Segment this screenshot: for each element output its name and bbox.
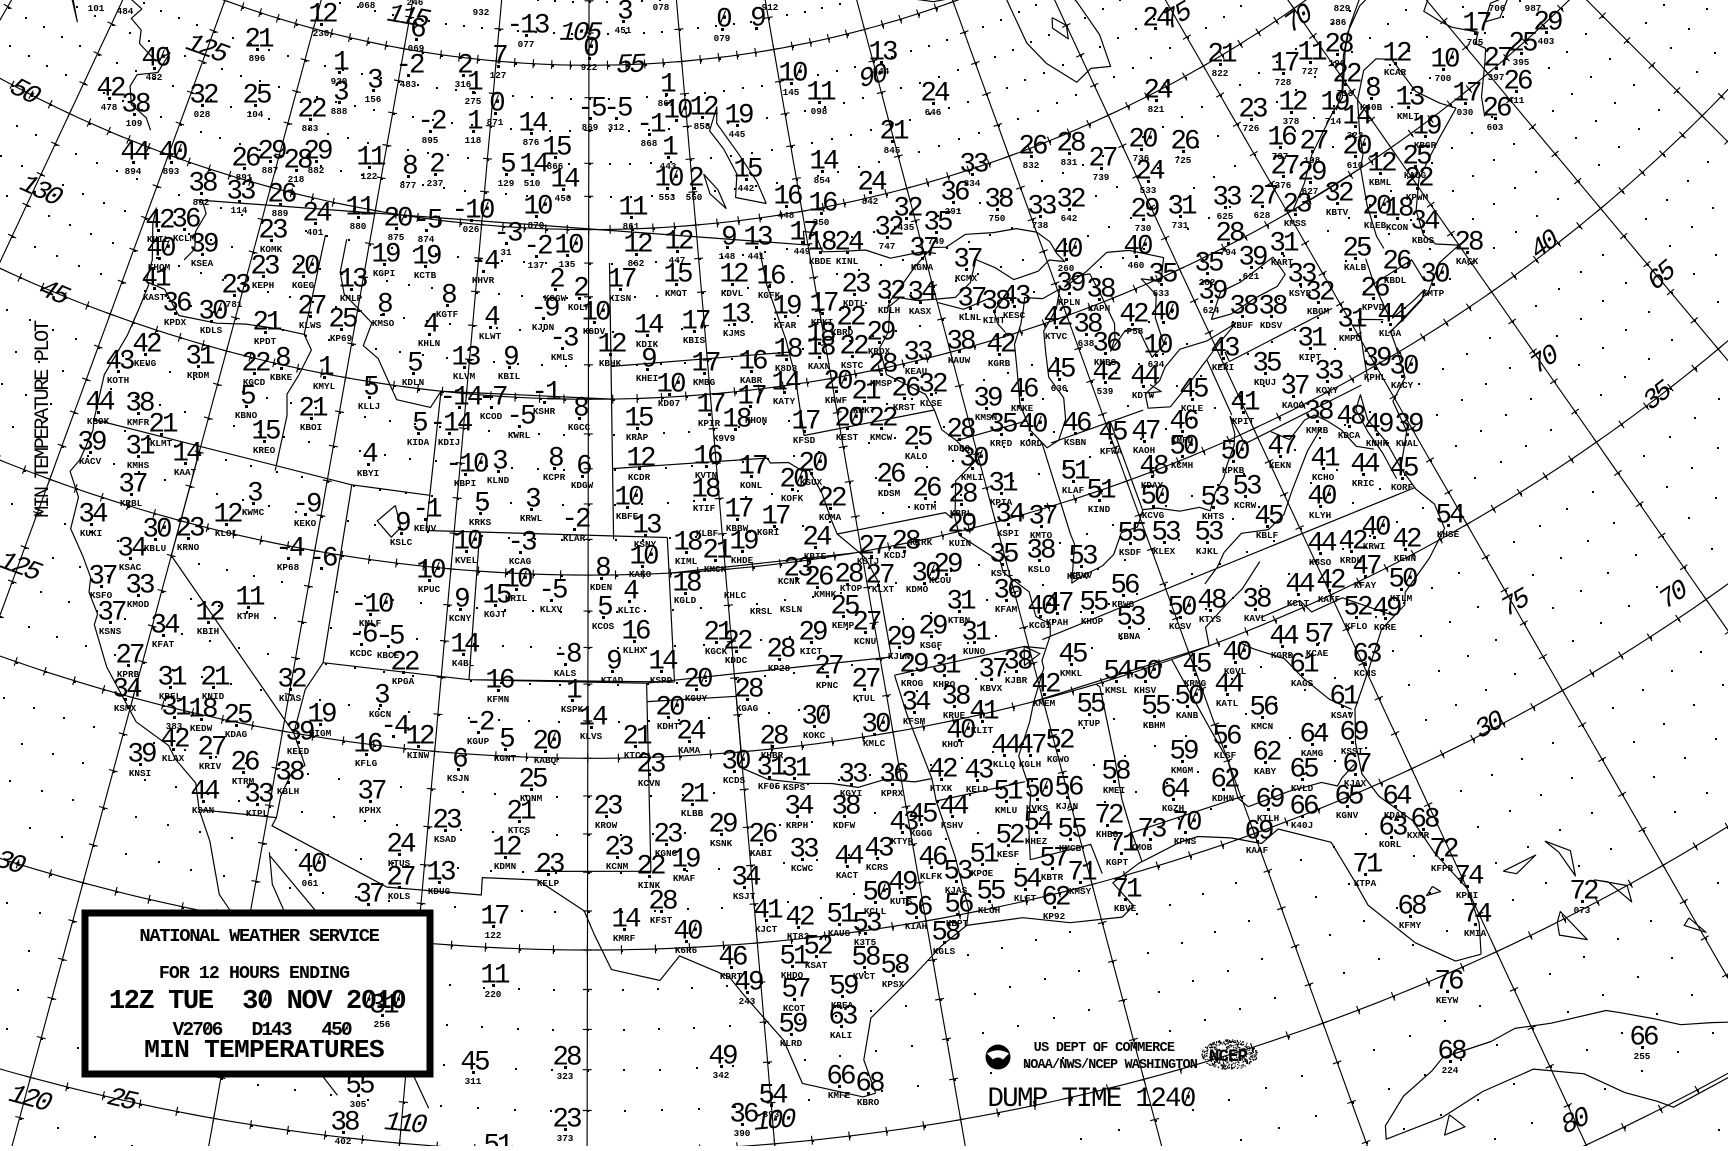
svg-text:1: 1 <box>318 353 334 384</box>
svg-text:KMSO: KMSO <box>372 318 395 329</box>
svg-text:KAST: KAST <box>143 292 166 303</box>
svg-text:383: 383 <box>166 721 183 732</box>
svg-text:34: 34 <box>901 688 931 719</box>
svg-text:KCDS: KCDS <box>723 775 746 786</box>
svg-text:KAPN: KAPN <box>1088 303 1110 314</box>
svg-text:109: 109 <box>126 118 143 129</box>
svg-text:KONM: KONM <box>520 793 543 804</box>
svg-text:KMFR: KMFR <box>127 417 150 428</box>
svg-text:KPGA: KPGA <box>392 676 415 687</box>
svg-text:KMEI: KMEI <box>1103 785 1125 796</box>
svg-text:KJKL: KJKL <box>1196 546 1219 557</box>
svg-text:KINW: KINW <box>407 750 430 761</box>
svg-text:390: 390 <box>734 1128 751 1139</box>
svg-text:610: 610 <box>1347 160 1364 171</box>
svg-text:KSPI: KSPI <box>997 528 1019 539</box>
svg-text:34: 34 <box>907 278 937 309</box>
svg-text:KLAX: KLAX <box>162 753 185 764</box>
svg-text:KPIT: KPIT <box>1232 416 1255 427</box>
svg-text:KJCT: KJCT <box>755 924 778 935</box>
svg-text:912: 912 <box>762 2 779 13</box>
svg-text:736: 736 <box>1133 153 1150 164</box>
svg-text:KROX: KROX <box>868 346 891 357</box>
svg-text:KMAF: KMAF <box>673 873 696 884</box>
svg-text:KVKS: KVKS <box>1026 803 1049 814</box>
svg-text:21: 21 <box>879 117 909 148</box>
svg-text:KDLS: KDLS <box>200 325 223 336</box>
svg-text:KMCK: KMCK <box>704 564 727 575</box>
svg-text:KCVN: KCVN <box>638 778 660 789</box>
svg-text:51: 51 <box>483 1131 513 1147</box>
svg-text:34: 34 <box>731 863 761 894</box>
svg-text:61: 61 <box>1329 682 1359 713</box>
svg-text:KGCD: KGCD <box>243 377 266 388</box>
svg-text:KLEX: KLEX <box>1153 546 1176 557</box>
svg-text:KMEM: KMEM <box>1033 698 1056 709</box>
svg-text:822: 822 <box>1212 68 1229 79</box>
svg-text:078: 078 <box>653 2 670 13</box>
svg-text:KMCB: KMCB <box>1059 843 1082 854</box>
svg-text:KLRD: KLRD <box>780 1038 803 1049</box>
svg-text:KRST: KRST <box>893 402 916 413</box>
svg-text:KRSL: KRSL <box>750 606 773 617</box>
svg-text:34: 34 <box>117 534 147 565</box>
svg-text:077: 077 <box>518 39 535 50</box>
svg-text:KD07: KD07 <box>658 398 680 409</box>
svg-text:21: 21 <box>1207 40 1237 71</box>
svg-text:KLAS: KLAS <box>279 693 302 704</box>
svg-text:275: 275 <box>465 96 482 107</box>
svg-text:882: 882 <box>308 165 325 176</box>
svg-text:028: 028 <box>194 109 211 120</box>
svg-text:KROW: KROW <box>595 820 618 831</box>
svg-text:KBTV: KBTV <box>1326 207 1349 218</box>
svg-text:KSFO: KSFO <box>90 590 113 601</box>
svg-text:098: 098 <box>811 106 828 117</box>
svg-text:KREO: KREO <box>253 445 276 456</box>
svg-text:KENV: KENV <box>414 523 437 534</box>
svg-text:14: 14 <box>648 647 678 678</box>
svg-text:KBRL: KBRL <box>950 508 973 519</box>
svg-text:KBCE: KBCE <box>377 650 400 661</box>
svg-text:114: 114 <box>231 205 248 216</box>
svg-text:KOLS: KOLS <box>388 891 411 902</box>
svg-text:KAMG: KAMG <box>1301 748 1324 759</box>
svg-text:KAUG: KAUG <box>1404 170 1427 181</box>
svg-text:KMGM: KMGM <box>1171 765 1194 776</box>
svg-text:KLLQ: KLLQ <box>993 759 1016 770</box>
svg-text:KGPI: KGPI <box>373 268 395 279</box>
svg-text:323: 323 <box>557 1071 574 1082</box>
svg-text:KEMP: KEMP <box>832 620 855 631</box>
svg-text:KLFK: KLFK <box>920 871 943 882</box>
svg-text:KLLJ: KLLJ <box>358 401 380 412</box>
svg-text:311: 311 <box>465 1076 482 1087</box>
svg-text:KTCS: KTCS <box>508 825 531 836</box>
svg-text:KRMG: KRMG <box>1184 678 1207 689</box>
svg-text:KGRB: KGRB <box>988 358 1011 369</box>
svg-text:21: 21 <box>298 394 328 425</box>
svg-text:KFSM: KFSM <box>903 716 926 727</box>
svg-text:KPLN: KPLN <box>1058 297 1080 308</box>
svg-text:KDMO: KDMO <box>906 584 929 595</box>
svg-text:KNSI: KNSI <box>129 768 151 779</box>
svg-text:447: 447 <box>669 255 686 266</box>
svg-text:KPAH: KPAH <box>1046 617 1068 628</box>
svg-text:44: 44 <box>120 138 150 169</box>
svg-text:KRIC: KRIC <box>1352 478 1375 489</box>
svg-text:KGSO: KGSO <box>1309 557 1332 568</box>
svg-text:KLIT: KLIT <box>971 725 994 736</box>
svg-text:KCOU: KCOU <box>929 575 951 586</box>
svg-text:K4BL: K4BL <box>452 658 475 669</box>
svg-text:4: 4 <box>362 440 378 471</box>
svg-text:KEDW: KEDW <box>190 723 213 734</box>
svg-text:603: 603 <box>1487 122 1504 133</box>
svg-text:11: 11 <box>356 143 386 174</box>
svg-text:KRFD: KRFD <box>990 438 1013 449</box>
svg-text:KFAM: KFAM <box>995 604 1018 615</box>
svg-text:483: 483 <box>400 79 417 90</box>
svg-text:KDBQ: KDBQ <box>948 443 971 454</box>
svg-text:34: 34 <box>784 792 814 823</box>
svg-text:KCVG: KCVG <box>1142 510 1165 521</box>
svg-text:KBPT: KBPT <box>946 918 969 929</box>
svg-text:-1: -1 <box>531 378 561 409</box>
svg-text:31: 31 <box>185 342 215 373</box>
svg-text:KCWC: KCWC <box>791 863 814 874</box>
svg-text:KGZH: KGZH <box>1162 803 1184 814</box>
svg-text:3: 3 <box>617 0 632 28</box>
svg-text:KTVC: KTVC <box>1045 331 1068 342</box>
svg-text:KSAN: KSAN <box>192 805 214 816</box>
svg-text:987: 987 <box>1525 3 1542 14</box>
svg-text:889: 889 <box>272 208 289 219</box>
svg-text:KTPA: KTPA <box>1354 878 1377 889</box>
svg-text:922: 922 <box>581 62 598 73</box>
svg-text:KCNY: KCNY <box>449 613 472 624</box>
svg-text:KNHK: KNHK <box>1366 438 1389 449</box>
svg-text:KMCW: KMCW <box>870 432 893 443</box>
svg-text:334: 334 <box>964 178 981 189</box>
svg-text:867: 867 <box>658 98 675 109</box>
svg-text:KIPT: KIPT <box>1299 352 1322 363</box>
svg-text:64: 64 <box>1299 720 1329 751</box>
svg-text:KGGW: KGGW <box>544 293 567 304</box>
svg-text:KCNM: KCNM <box>606 861 629 872</box>
svg-text:KFAY: KFAY <box>1354 580 1377 591</box>
svg-text:411: 411 <box>1508 95 1525 106</box>
svg-text:KLSE: KLSE <box>920 398 943 409</box>
svg-text:KCNU: KCNU <box>854 636 876 647</box>
svg-text:861: 861 <box>623 221 640 232</box>
svg-text:393: 393 <box>763 1109 780 1120</box>
svg-text:KMRF: KMRF <box>613 933 636 944</box>
svg-text:41: 41 <box>1230 388 1260 419</box>
svg-text:KPRX: KPRX <box>881 788 904 799</box>
svg-text:44: 44 <box>1269 622 1299 653</box>
svg-text:KCLT: KCLT <box>1287 598 1310 609</box>
svg-text:KALS: KALS <box>554 668 577 679</box>
svg-text:376: 376 <box>1275 180 1292 191</box>
svg-text:350: 350 <box>813 217 830 228</box>
svg-text:KTBN: KTBN <box>948 615 970 626</box>
svg-text:4: 4 <box>484 303 500 334</box>
svg-text:KPWM: KPWM <box>1406 192 1429 203</box>
svg-text:KLFT: KLFT <box>1014 893 1037 904</box>
svg-text:KLCH: KLCH <box>978 905 1000 916</box>
svg-text:373: 373 <box>557 1133 574 1144</box>
svg-text:KFPR: KFPR <box>1431 863 1454 874</box>
svg-text:220: 220 <box>485 989 502 1000</box>
svg-text:KCOS: KCOS <box>592 621 615 632</box>
svg-text:KCRW: KCRW <box>1234 500 1257 511</box>
svg-text:KSAD: KSAD <box>434 834 457 845</box>
svg-text:829: 829 <box>1334 3 1351 14</box>
svg-text:854: 854 <box>814 175 831 186</box>
svg-text:41: 41 <box>969 697 999 728</box>
svg-text:1: 1 <box>333 48 349 79</box>
svg-text:KIND: KIND <box>1088 504 1111 515</box>
svg-text:KLYH: KLYH <box>1309 510 1331 521</box>
svg-text:KSSI: KSSI <box>1341 746 1363 757</box>
svg-text:738: 738 <box>1032 220 1049 231</box>
svg-text:876: 876 <box>523 137 540 148</box>
svg-text:KGUP: KGUP <box>467 736 490 747</box>
svg-text:KUKI: KUKI <box>80 528 102 539</box>
svg-text:KBTR: KBTR <box>1041 872 1064 883</box>
svg-text:NOAA/NWS/NCEP WASHINGTON: NOAA/NWS/NCEP WASHINGTON <box>1023 1058 1198 1073</box>
svg-text:KHEZ: KHEZ <box>1025 836 1048 847</box>
svg-text:KHVR: KHVR <box>472 275 495 286</box>
svg-text:KGNC: KGNC <box>655 848 678 859</box>
svg-text:KACY: KACY <box>1391 380 1414 391</box>
svg-text:KBFL: KBFL <box>159 691 182 702</box>
svg-text:31: 31 <box>369 991 399 1022</box>
svg-text:069: 069 <box>408 43 425 54</box>
svg-text:KJAN: KJAN <box>1056 801 1078 812</box>
svg-text:KGNT: KGNT <box>494 753 517 764</box>
svg-text:21: 21 <box>622 722 652 753</box>
svg-text:11: 11 <box>235 583 265 614</box>
svg-text:KRDM: KRDM <box>187 370 210 381</box>
svg-text:-4: -4 <box>470 247 500 278</box>
svg-text:726: 726 <box>1243 123 1260 134</box>
svg-text:KVTN: KVTN <box>695 470 717 481</box>
svg-text:KDRT: KDRT <box>720 971 743 982</box>
svg-text:KISN: KISN <box>609 293 631 304</box>
svg-text:KAUS: KAUS <box>828 928 851 939</box>
svg-text:KELD: KELD <box>966 784 989 795</box>
svg-text:KAUW: KAUW <box>948 355 971 366</box>
svg-text:KP92: KP92 <box>1043 911 1066 922</box>
svg-text:KACV: KACV <box>79 456 102 467</box>
svg-text:739: 739 <box>1093 172 1110 183</box>
svg-text:KMOB: KMOB <box>1130 842 1153 853</box>
svg-text:KRUE: KRUE <box>943 710 966 721</box>
svg-text:KVCT: KVCT <box>853 971 876 982</box>
svg-text:KSBN: KSBN <box>1064 437 1086 448</box>
svg-text:KGRD: KGRD <box>1271 650 1294 661</box>
svg-text:31: 31 <box>946 587 976 618</box>
svg-text:KFMN: KFMN <box>487 694 509 705</box>
svg-text:KOKC: KOKC <box>803 730 826 741</box>
svg-text:636: 636 <box>1051 383 1068 394</box>
svg-text:482: 482 <box>146 72 163 83</box>
svg-text:KHLN: KHLN <box>418 338 440 349</box>
svg-text:781: 781 <box>226 299 243 310</box>
svg-text:54: 54 <box>758 1081 788 1112</box>
svg-text:KEAU: KEAU <box>905 366 927 377</box>
svg-text:KOMA: KOMA <box>819 512 842 523</box>
svg-text:KDLN: KDLN <box>402 377 424 388</box>
svg-text:21: 21 <box>702 536 732 567</box>
svg-text:21: 21 <box>679 780 709 811</box>
svg-text:4: 4 <box>623 577 639 608</box>
svg-text:P58: P58 <box>1127 326 1144 337</box>
svg-text:KGPT: KGPT <box>1106 857 1129 868</box>
svg-text:KCRE: KCRE <box>1374 622 1397 633</box>
svg-text:932: 932 <box>473 7 490 18</box>
svg-text:KT82: KT82 <box>787 931 810 942</box>
svg-text:291: 291 <box>945 206 962 217</box>
svg-text:KLIC: KLIC <box>618 605 641 616</box>
svg-text:K40B: K40B <box>1360 102 1383 113</box>
svg-text:305: 305 <box>350 1099 367 1110</box>
svg-text:KRIV: KRIV <box>199 761 222 772</box>
svg-text:443: 443 <box>660 161 677 172</box>
svg-text:KDTW: KDTW <box>1132 390 1155 401</box>
svg-text:71: 71 <box>1067 858 1097 889</box>
svg-text:642: 642 <box>1061 213 1078 224</box>
svg-text:883: 883 <box>302 123 319 134</box>
svg-text:KIDA: KIDA <box>407 437 430 448</box>
svg-text:KSNS: KSNS <box>99 626 122 637</box>
svg-text:74: 74 <box>1462 900 1492 931</box>
svg-text:KAAT: KAAT <box>174 467 197 478</box>
svg-text:KFLG: KFLG <box>355 758 378 769</box>
svg-text:KINK: KINK <box>638 880 661 891</box>
svg-text:842: 842 <box>862 196 879 207</box>
svg-text:KGTF: KGTF <box>436 309 459 320</box>
svg-text:31: 31 <box>1269 229 1299 260</box>
svg-text:KLBB: KLBB <box>681 808 704 819</box>
svg-text:KROG: KROG <box>901 678 924 689</box>
svg-text:KHRO: KHRO <box>933 679 956 690</box>
svg-text:KGNV: KGNV <box>1336 810 1359 821</box>
svg-text:31: 31 <box>1297 324 1327 355</box>
svg-text:KABQ: KABQ <box>534 755 557 766</box>
svg-text:KTYS: KTYS <box>1199 614 1222 625</box>
svg-text:KRWL: KRWL <box>520 513 543 524</box>
svg-text:34: 34 <box>1410 207 1440 238</box>
svg-text:KDIK: KDIK <box>636 339 659 350</box>
svg-text:KORL: KORL <box>1379 839 1402 850</box>
svg-text:71: 71 <box>1112 875 1142 906</box>
svg-text:KSAT: KSAT <box>805 960 828 971</box>
svg-text:KDMN: KDMN <box>494 861 516 872</box>
svg-text:KEVV: KEVV <box>1067 571 1090 582</box>
svg-text:129: 129 <box>498 178 515 189</box>
svg-text:KGLS: KGLS <box>933 946 956 957</box>
svg-text:KFAT: KFAT <box>152 639 175 650</box>
svg-text:246: 246 <box>407 0 424 8</box>
svg-text:KWAL: KWAL <box>1396 438 1419 449</box>
svg-text:KMBG: KMBG <box>693 377 716 388</box>
svg-text:728: 728 <box>1275 77 1292 88</box>
svg-text:KBRO: KBRO <box>857 1097 880 1108</box>
svg-text:316: 316 <box>455 79 472 90</box>
svg-text:714: 714 <box>1325 116 1342 127</box>
svg-text:KCLM: KCLM <box>173 233 196 244</box>
svg-text:31: 31 <box>988 469 1018 500</box>
svg-text:713: 713 <box>1337 88 1354 99</box>
svg-text:730: 730 <box>1135 223 1152 234</box>
svg-text:KORD: KORD <box>1020 438 1043 449</box>
svg-text:KFAR: KFAR <box>774 320 797 331</box>
svg-text:KGNA: KGNA <box>911 262 934 273</box>
svg-text:KCON: KCON <box>1386 222 1408 233</box>
svg-text:KAFF: KAFF <box>1318 594 1341 605</box>
svg-text:KHLC: KHLC <box>724 590 747 601</box>
svg-text:KTXK: KTXK <box>930 783 953 794</box>
svg-text:KSGF: KSGF <box>920 640 943 651</box>
svg-text:KTUS: KTUS <box>388 858 411 869</box>
svg-text:KGLH: KGLH <box>1019 759 1041 770</box>
svg-text:706: 706 <box>1489 3 1506 14</box>
svg-text:KBOI: KBOI <box>300 422 322 433</box>
svg-text:KMHK: KMHK <box>814 589 837 600</box>
svg-text:621: 621 <box>1243 271 1260 282</box>
svg-text:KORF: KORF <box>1391 482 1414 493</box>
svg-text:KESC: KESC <box>1003 310 1026 321</box>
svg-text:KHBR: KHBR <box>761 750 784 761</box>
svg-text:KBOS: KBOS <box>1412 235 1435 246</box>
svg-text:KVEL: KVEL <box>455 555 478 566</box>
svg-text:KEYW: KEYW <box>1436 995 1459 1006</box>
svg-text:KINL: KINL <box>836 256 859 267</box>
svg-text:KGEG: KGEG <box>292 280 315 291</box>
svg-text:858: 858 <box>694 121 711 132</box>
svg-text:KTAD: KTAD <box>601 675 624 686</box>
svg-text:KP69: KP69 <box>330 333 353 344</box>
svg-text:KHOT: KHOT <box>942 739 965 750</box>
svg-text:KDGW: KDGW <box>571 480 594 491</box>
svg-text:24: 24 <box>1142 4 1172 35</box>
svg-text:KBLU: KBLU <box>144 543 166 554</box>
svg-text:821: 821 <box>1148 104 1165 115</box>
svg-text:14: 14 <box>634 311 664 342</box>
svg-text:KJAX: KJAX <box>1344 778 1367 789</box>
svg-text:KGGG: KGGG <box>910 828 933 839</box>
svg-text:11: 11 <box>345 193 375 224</box>
svg-text:KJMS: KJMS <box>723 328 746 339</box>
svg-text:24: 24 <box>386 830 416 861</box>
svg-text:145: 145 <box>783 87 800 98</box>
svg-text:127: 127 <box>490 70 507 81</box>
svg-text:KSYR: KSYR <box>1289 288 1312 299</box>
svg-text:KBOK: KBOK <box>87 416 110 427</box>
svg-text:31: 31 <box>1167 192 1197 223</box>
svg-text:KMLI: KMLI <box>961 472 983 483</box>
svg-text:KART: KART <box>1271 257 1294 268</box>
svg-text:KSTL: KSTL <box>991 568 1014 579</box>
svg-text:893: 893 <box>163 166 180 177</box>
svg-text:KCPR: KCPR <box>543 472 566 483</box>
svg-text:KLWT: KLWT <box>479 331 502 342</box>
svg-text:402: 402 <box>335 1136 352 1146</box>
svg-text:K3T5: K3T5 <box>854 937 877 948</box>
